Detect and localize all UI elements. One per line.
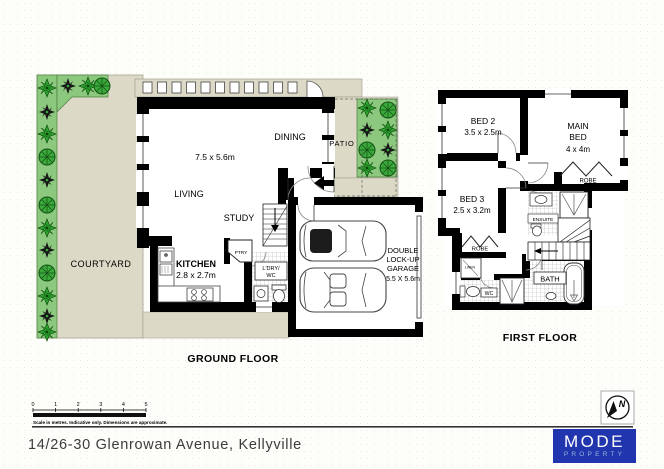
living-dims-label: 7.5 x 5.6m (195, 152, 235, 162)
divider-line (32, 426, 633, 428)
living-label: LIVING (174, 189, 204, 199)
scale-tick-2: 2 (77, 402, 80, 408)
compass-icon: N (601, 391, 634, 424)
ensuite-label: ENSUITE (533, 217, 554, 223)
study-label: STUDY (224, 213, 255, 223)
bed3-label: BED 3 (460, 194, 485, 204)
floor-plan-drawing: COURTYARD 7.5 x 5.6m DINING LIVING STUDY… (0, 0, 664, 469)
main-bed-label-1: MAIN (567, 121, 588, 131)
courtyard-label: COURTYARD (71, 259, 132, 269)
dining-label: DINING (274, 132, 306, 142)
ground-stairs (263, 204, 287, 246)
kitchen-dims-label: 2.8 x 2.7m (176, 270, 216, 280)
main-bed-label-2: BED (569, 132, 586, 142)
garage-label-1: DOUBLE (388, 246, 419, 255)
bath-label: BATH (540, 275, 559, 284)
bed2-dims-label: 3.5 x 2.5m (464, 128, 502, 137)
linen-label: LINEN (465, 266, 476, 270)
floorplan-page: COURTYARD 7.5 x 5.6m DINING LIVING STUDY… (0, 0, 664, 469)
bed2-label: BED 2 (471, 116, 496, 126)
verandah-balustrade (143, 82, 297, 93)
ground-floor-title: GROUND FLOOR (187, 353, 278, 365)
scale-tick-0: 0 (31, 402, 34, 408)
ground-floor-plan: COURTYARD 7.5 x 5.6m DINING LIVING STUDY… (37, 75, 423, 365)
robe-bed3-label: ROBE (472, 247, 489, 253)
robe-main-label: ROBE (579, 179, 596, 185)
scale-tick-1: 1 (54, 402, 57, 408)
main-bed-dims-label: 4 x 4m (566, 145, 590, 154)
garden-strip-patio (357, 99, 397, 177)
scale-bar: 0 1 2 3 4 5 Scale in metres. Indicative … (31, 402, 167, 425)
property-address: 14/26-30 Glenrowan Avenue, Kellyville (28, 437, 302, 453)
laundry-label-2: WC (266, 273, 275, 279)
garage-dims-label: 5.5 X 5.6m (386, 276, 420, 283)
bed3-dims-label: 2.5 x 3.2m (453, 206, 491, 215)
pantry-label: PTRY (235, 250, 249, 256)
agency-logo-tagline: PROPERTY (564, 451, 625, 459)
scale-tick-4: 4 (122, 402, 125, 408)
scale-tick-5: 5 (144, 402, 147, 408)
kitchen-label: KITCHEN (176, 259, 216, 269)
agency-logo-name: MODE (564, 433, 625, 450)
scale-tick-3: 3 (99, 402, 102, 408)
scale-caption: Scale in metres. Indicative only. Dimens… (33, 420, 167, 425)
wc-label: WC (485, 291, 494, 297)
first-floor-title: FIRST FLOOR (503, 332, 577, 344)
car-convertible (300, 268, 386, 312)
first-floor-plan: BED 2 3.5 x 2.5m MAIN BED 4 x 4m BED 3 2… (437, 89, 629, 344)
agency-logo: MODE PROPERTY (553, 429, 636, 463)
compass-north-letter: N (619, 399, 626, 409)
patio-label: PATIO (329, 139, 354, 148)
laundry-label-1: L'DRY/ (262, 266, 280, 272)
garage-label-2: LOCK-UP (386, 255, 419, 264)
garage-label-3: GARAGE (387, 264, 419, 273)
car-sedan (300, 221, 386, 261)
